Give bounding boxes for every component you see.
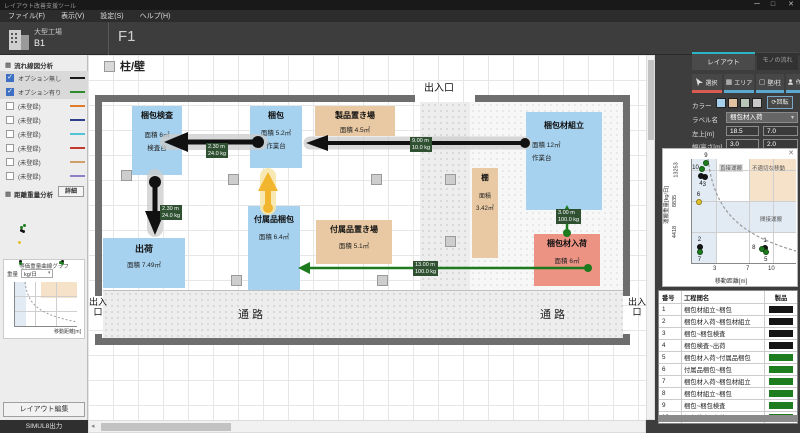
chart-ylabel: 運搬重量[kg/日] <box>662 186 670 224</box>
app-window: レイアウト改善支援ツール ー □ ✕ ファイル(F) 表示(V) 設定(S) ヘ… <box>0 0 800 433</box>
tab-flow[interactable]: モノの流れ <box>757 52 798 70</box>
mini-curve <box>15 282 77 326</box>
flow-color-line <box>70 133 85 135</box>
dashed-box-icon: ▢ <box>759 78 766 86</box>
pos-x-input[interactable]: 18.5 <box>726 126 759 136</box>
scroll-left-icon[interactable]: ◂ <box>91 422 95 430</box>
flow-section-title: 流れ線図分析 <box>14 60 53 70</box>
detail-button[interactable]: 詳細 <box>58 186 84 197</box>
chart-xlabel: 移動距離[m] <box>663 276 799 285</box>
table-row[interactable]: 6付属品梱包~梱包 <box>659 363 797 375</box>
distance-weight-chart: ✕ 運搬重量[kg/日] 13253 8835 4418 直接運搬 不適 <box>662 148 798 287</box>
layout-edit-button[interactable]: レイアウト編集 <box>3 402 85 417</box>
flow-item-list: オプション無し オプション有り (未登録) (未登録) (未登録) (未登録) … <box>0 71 88 183</box>
menu-bar: ファイル(F) 表示(V) 設定(S) ヘルプ(H) <box>0 10 800 22</box>
rotate-button[interactable]: ⟳回転 <box>767 96 793 109</box>
label-name-select[interactable]: 梱包材入荷 ▾ <box>726 112 798 123</box>
window-title: レイアウト改善支援ツール <box>4 1 76 10</box>
properties-panel: レイアウト モノの流れ 選択 ▦ エリア ▢ 壁/柱 作業者 カラー ⟳回転 ラ… <box>655 55 800 433</box>
mini-plot <box>14 282 77 327</box>
checkbox-icon[interactable] <box>6 74 14 82</box>
tool-worker[interactable]: 作業者 <box>786 74 800 93</box>
flow-label: 9.00 m10.0 kg <box>410 137 432 152</box>
grid-icon: ▦ <box>726 78 733 86</box>
building-floor: B1 <box>34 38 45 48</box>
tab-layout[interactable]: レイアウト <box>692 52 755 70</box>
tool-select[interactable]: 選択 <box>692 74 722 93</box>
table-scrollbar[interactable] <box>658 415 798 422</box>
building-name: 大型工場 <box>34 27 62 37</box>
building-icon <box>8 26 30 50</box>
scrollbar-thumb[interactable] <box>648 60 654 140</box>
y-tick: 13253 <box>674 162 680 177</box>
flow-item[interactable]: オプション無し <box>0 71 88 85</box>
color-label: カラー <box>692 100 712 110</box>
product-color-chip <box>769 318 793 325</box>
table-row[interactable]: 5梱包材入荷~付属品梱包 <box>659 351 797 363</box>
threshold-curve <box>692 159 796 263</box>
flow-item[interactable]: オプション有り <box>0 85 88 99</box>
menu-item-settings[interactable]: 設定(S) <box>100 11 123 21</box>
flow-section-header: ▦ 流れ線図分析 <box>0 58 88 71</box>
table-row[interactable]: 7梱包材入荷~梱包材組立 <box>659 375 797 387</box>
pos-y-input[interactable]: 7.0 <box>763 126 798 136</box>
flow-label: 2.30 m24.0 kg <box>160 205 182 220</box>
flow-color-line <box>70 91 85 93</box>
header-bar: 大型工場 B1 F1 ✓▦ ✓▩ ✓Aa ✓❑ ✓◪ ✓╱ ✓▤ ✓◭ 100% <box>0 22 800 55</box>
table-row[interactable]: 2梱包材入荷~梱包材組立 <box>659 315 797 327</box>
region-improper-label: 不適切な移動 <box>752 164 785 172</box>
region-indirect-label: 間接運搬 <box>760 215 782 223</box>
checkbox-icon[interactable] <box>6 116 14 124</box>
checkbox-icon[interactable] <box>6 88 14 96</box>
position-label: 左上[m] <box>692 128 714 138</box>
product-color-chip <box>769 402 793 409</box>
layout-canvas[interactable]: 出入口 出入口 出入口 通路 通路 梱包検査 面積 6㎡ 検査台 梱包 面積 5… <box>88 55 646 420</box>
vertical-scrollbar[interactable] <box>646 55 655 420</box>
y-tick: 8835 <box>672 195 678 207</box>
table-header: 番号 工程間名 製品 <box>659 291 797 303</box>
mini-xlabel: 移動距離[m] <box>54 328 81 335</box>
close-icon[interactable]: ✕ <box>788 149 794 157</box>
table-row[interactable]: 9梱包~梱包検査 <box>659 399 797 411</box>
region-direct-label: 直接運搬 <box>719 164 743 172</box>
table-row[interactable]: 8梱包材組立~梱包 <box>659 387 797 399</box>
mini-unit-label: 重量 <box>7 270 18 278</box>
weight-section-title: 距離重量分析 <box>14 189 53 199</box>
flow-color-line <box>70 175 85 177</box>
color-swatch-grey[interactable] <box>752 98 762 108</box>
tool-wall-pillar[interactable]: ▢ 壁/柱 <box>756 74 784 93</box>
color-swatch-tan[interactable] <box>728 98 738 108</box>
menu-item-file[interactable]: ファイル(F) <box>8 11 45 21</box>
wall-toggle[interactable]: 柱/壁 <box>104 58 145 74</box>
close-button[interactable]: ✕ <box>784 0 798 10</box>
flow-arrows-layer <box>88 55 646 420</box>
flow-color-line <box>70 161 85 163</box>
flow-color-line <box>70 77 85 79</box>
flow-item[interactable]: (未登録) <box>0 141 88 155</box>
table-row[interactable]: 1梱包材組立~梱包 <box>659 303 797 315</box>
color-swatch-sage[interactable] <box>740 98 750 108</box>
flow-label: 3.00 m100.0 kg <box>556 209 581 224</box>
weight-section-header: ▦ 距離重量分析 詳細 <box>0 187 88 200</box>
building-block: 大型工場 B1 <box>0 22 109 55</box>
product-color-chip <box>769 390 793 397</box>
label-name-label: ラベル名 <box>692 114 718 124</box>
x-tick: 7 <box>746 266 749 272</box>
menu-item-help[interactable]: ヘルプ(H) <box>140 11 171 21</box>
product-color-chip <box>769 330 793 337</box>
x-tick: 10 <box>768 266 775 272</box>
checkbox-icon[interactable] <box>6 158 14 166</box>
tool-area[interactable]: ▦ エリア <box>724 74 754 93</box>
title-bar: レイアウト改善支援ツール ー □ ✕ <box>0 0 800 10</box>
chevron-down-icon: ▾ <box>791 113 794 123</box>
checkbox-icon[interactable] <box>6 144 14 152</box>
grid-icon: ▦ <box>5 190 11 198</box>
floor-label: F1 <box>118 28 136 45</box>
checkbox-icon[interactable] <box>6 172 14 180</box>
flow-color-line <box>70 147 85 149</box>
grid-icon: ▦ <box>5 61 11 69</box>
checkbox-icon[interactable] <box>6 130 14 138</box>
wall-toggle-label: 柱/壁 <box>120 58 145 74</box>
flow-color-line <box>70 105 85 107</box>
y-tick: 4418 <box>672 226 678 238</box>
product-color-chip <box>769 306 793 313</box>
minimize-button[interactable]: ー <box>750 0 764 10</box>
simul8-export-button[interactable]: SIMUL8出力 <box>0 420 88 433</box>
product-color-chip <box>769 366 793 373</box>
maximize-button[interactable]: □ <box>766 0 780 10</box>
flow-label: 13.00 m100.0 kg <box>413 261 438 276</box>
table-row[interactable]: 4梱包検査~出荷 <box>659 339 797 351</box>
product-color-chip <box>769 378 793 385</box>
checkbox-icon[interactable] <box>6 102 14 110</box>
menu-item-view[interactable]: 表示(V) <box>61 11 84 21</box>
checkbox-icon[interactable] <box>104 61 115 72</box>
cursor-icon <box>696 78 703 86</box>
flow-label: 2.30 m24.0 kg <box>206 143 228 158</box>
flow-item[interactable]: (未登録) <box>0 127 88 141</box>
product-color-chip <box>769 342 793 349</box>
product-color-chip <box>769 354 793 361</box>
flow-item[interactable]: (未登録) <box>0 155 88 169</box>
x-tick: 3 <box>713 266 716 272</box>
plot-area: 直接運搬 不適切な移動 間接運搬 <box>691 159 796 264</box>
flow-color-line <box>70 119 85 121</box>
person-icon <box>787 78 794 86</box>
table-row[interactable]: 3梱包~梱包検査 <box>659 327 797 339</box>
flow-item[interactable]: (未登録) <box>0 113 88 127</box>
color-swatch-blue[interactable] <box>716 98 726 108</box>
scrollbar-thumb[interactable] <box>101 423 231 431</box>
flow-item[interactable]: (未登録) <box>0 99 88 113</box>
chevron-down-icon: ▾ <box>48 270 51 276</box>
flow-item[interactable]: (未登録) <box>0 169 88 183</box>
process-pair-table: 番号 工程間名 製品 1梱包材組立~梱包 2梱包材入荷~梱包材組立 3梱包~梱包… <box>658 290 798 424</box>
mini-weight-curve-panel: 等価重量曲線グラフ 重量 kg/日 ▾ 移動距離[m] <box>3 259 85 339</box>
analysis-sidebar: ▦ 流れ線図分析 オプション無し オプション有り (未登録) (未登録) (未登… <box>0 55 88 420</box>
horizontal-scrollbar[interactable]: ◂ <box>88 420 646 433</box>
